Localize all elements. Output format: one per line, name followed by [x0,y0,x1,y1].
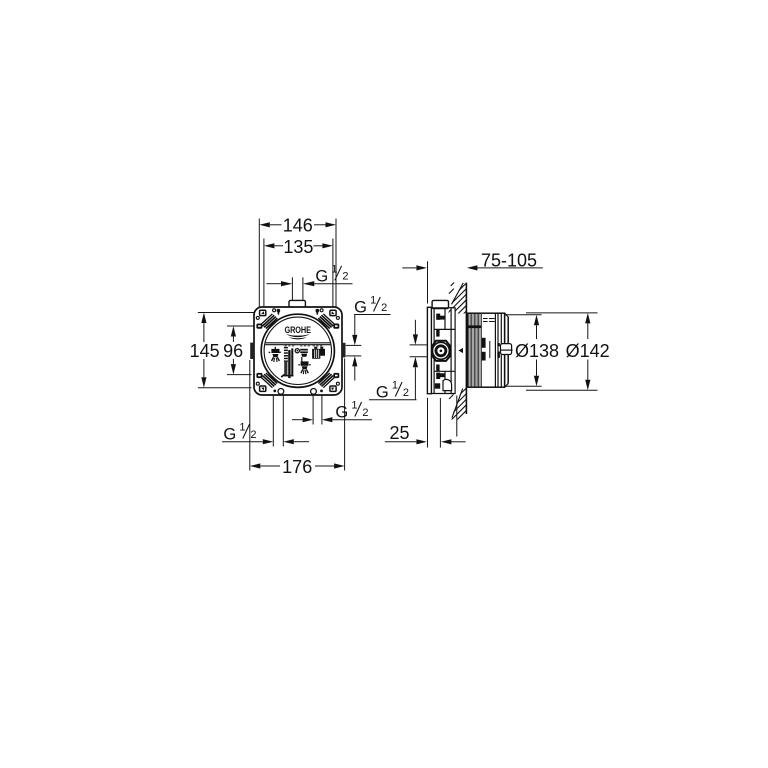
svg-text:145: 145 [190,341,220,361]
svg-text:2: 2 [403,387,409,399]
svg-text:2: 2 [381,302,387,314]
svg-text:Ø142: Ø142 [566,341,610,361]
svg-text:G: G [223,426,236,444]
svg-text:1: 1 [392,380,398,392]
svg-text:75-105: 75-105 [481,250,537,270]
svg-text:G: G [376,384,389,402]
svg-text:2: 2 [362,407,368,419]
svg-text:1: 1 [370,295,376,307]
svg-text:25: 25 [389,423,409,443]
svg-text:G: G [335,404,348,422]
svg-text:176: 176 [282,457,312,477]
svg-text:2: 2 [250,429,256,441]
svg-text:135: 135 [283,237,313,257]
svg-text:1: 1 [351,400,357,412]
svg-text:1: 1 [331,264,337,276]
svg-text:G: G [315,267,328,285]
svg-text:G: G [354,299,367,317]
svg-text:146: 146 [283,216,313,236]
svg-text:1: 1 [239,422,245,434]
svg-text:2: 2 [342,271,348,283]
svg-text:GROHE: GROHE [284,324,311,335]
svg-text:96: 96 [223,341,243,361]
svg-text:Ø138: Ø138 [515,341,559,361]
